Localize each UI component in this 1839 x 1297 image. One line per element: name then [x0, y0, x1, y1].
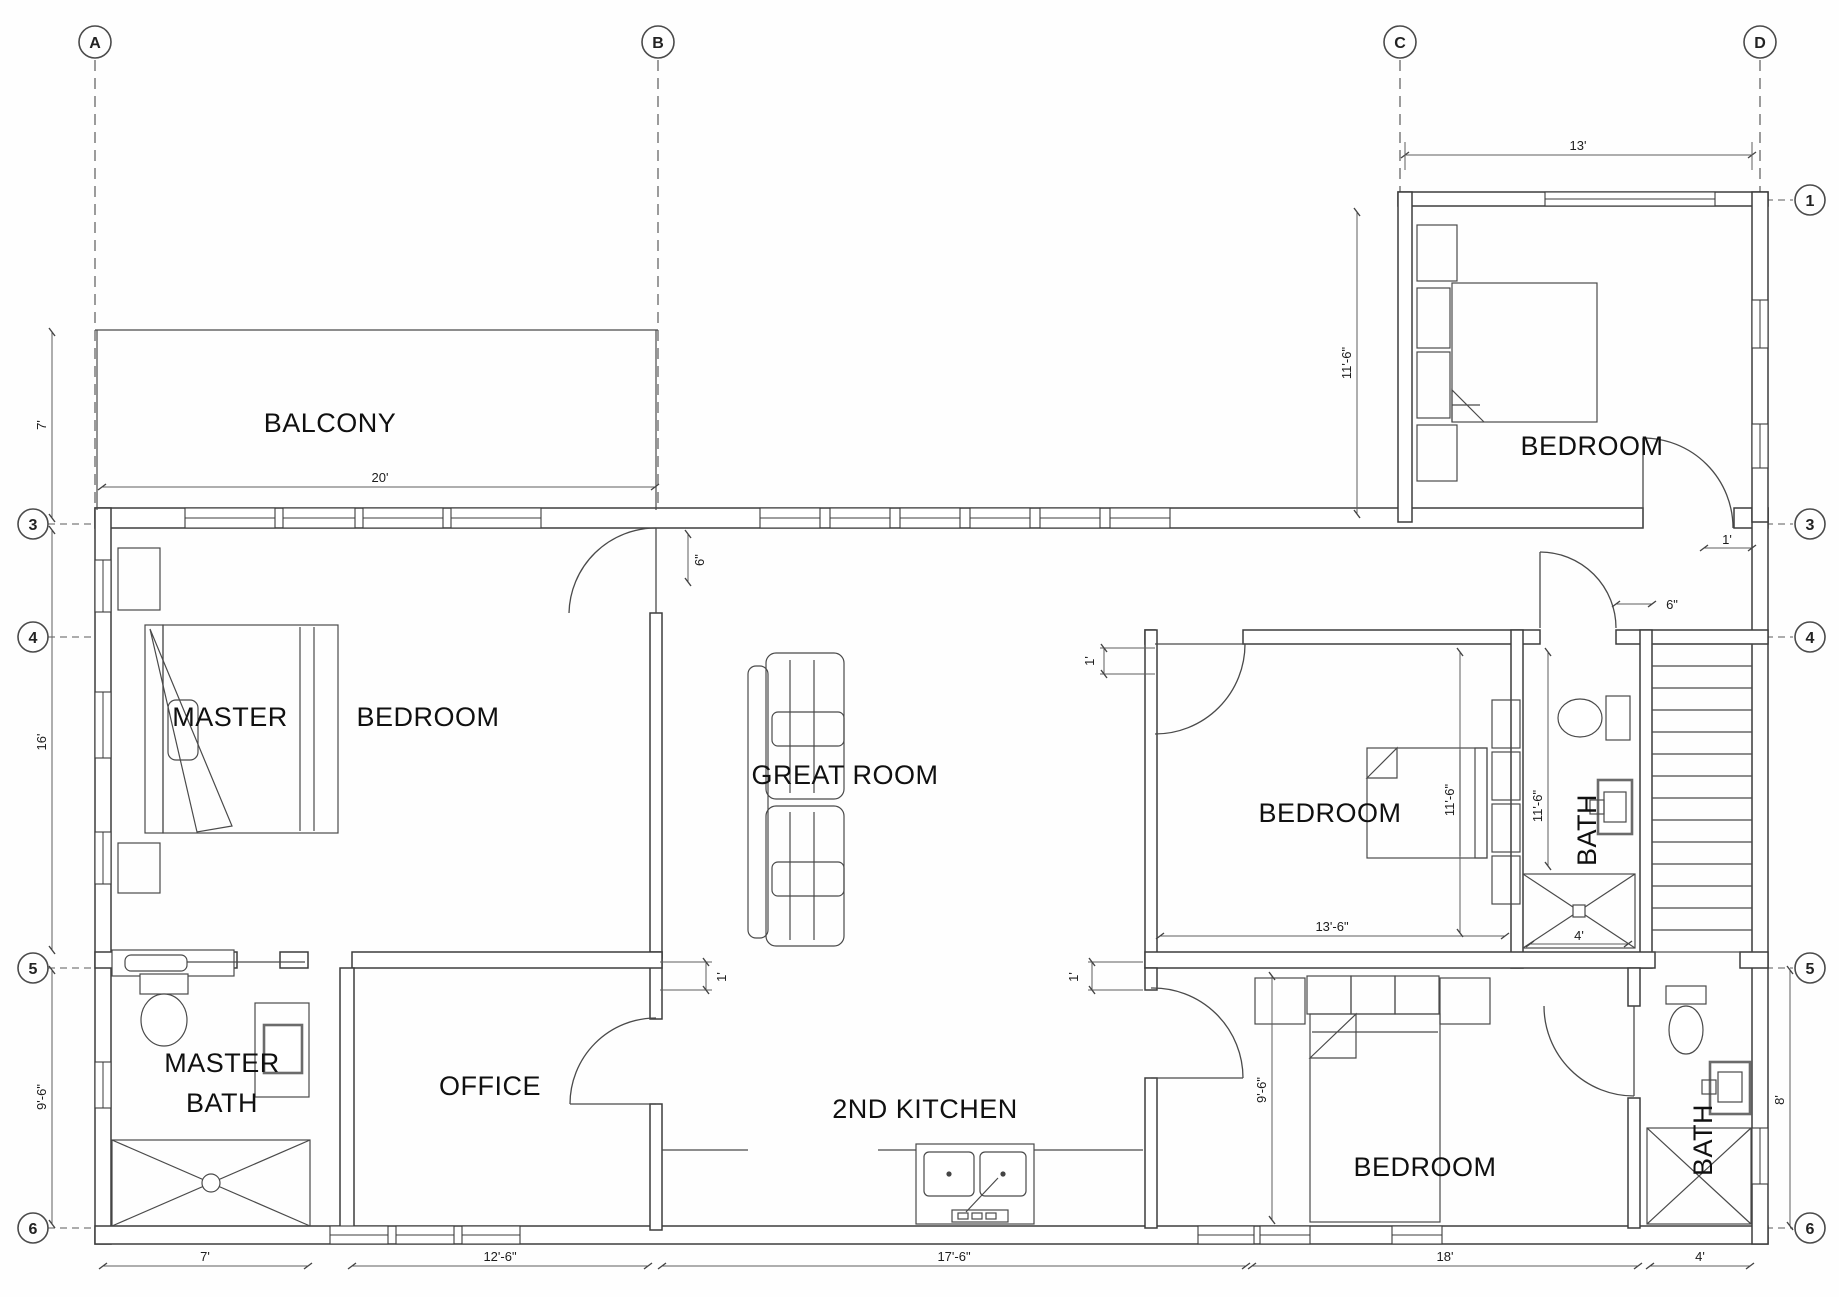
grid-marker-3-left: 3: [18, 509, 48, 539]
wall: [1740, 952, 1768, 968]
room-label-master-word2: BEDROOM: [356, 702, 499, 732]
door-master-bedroom: [569, 528, 656, 613]
dim-master-bath-width: 7': [200, 1249, 210, 1264]
grid-marker-6-left: 6: [18, 1213, 48, 1243]
svg-text:3: 3: [1806, 517, 1815, 534]
nightstand-icon: [118, 843, 160, 893]
wall: [1398, 192, 1412, 522]
dim-bedroom-tr-width: 13': [1570, 138, 1587, 153]
room-label-office: OFFICE: [439, 1071, 541, 1101]
kitchen-sink-icon: [916, 1144, 1034, 1224]
grid-marker-6-right: 6: [1795, 1213, 1825, 1243]
grid-marker-5-left: 5: [18, 953, 48, 983]
grid-marker-c: C: [1384, 26, 1416, 58]
wall: [352, 952, 662, 968]
bed-icon: [1310, 1014, 1440, 1222]
dim-master-bath-depth: 9'-6": [34, 1084, 49, 1110]
dim-bedroom-tr-depth: 11'-6": [1339, 347, 1354, 380]
dim-balcony-width: 20': [372, 470, 389, 485]
grid-marker-a: A: [79, 26, 111, 58]
room-label-master-bath-line2: BATH: [186, 1088, 258, 1118]
grid-marker-1: 1: [1795, 185, 1825, 215]
toilet-icon: [1666, 986, 1706, 1054]
svg-text:B: B: [652, 35, 664, 52]
svg-text:4: 4: [1806, 630, 1815, 647]
wall: [1640, 630, 1652, 968]
svg-text:3: 3: [29, 517, 38, 534]
room-label-bedroom-bottom: BEDROOM: [1353, 1152, 1496, 1182]
dim-bath-bottom-width: 4': [1695, 1249, 1705, 1264]
wall: [650, 1104, 662, 1230]
grid-marker-5-right: 5: [1795, 953, 1825, 983]
wall: [1145, 630, 1157, 968]
wall: [1243, 630, 1540, 644]
room-label-master-word1: MASTER: [172, 702, 288, 732]
wall: [1628, 968, 1640, 1006]
grid-marker-d: D: [1744, 26, 1776, 58]
wall: [1628, 1098, 1640, 1228]
toilet-icon: [1558, 696, 1630, 740]
svg-text:4: 4: [29, 630, 38, 647]
dim-shower-mid-width: 4': [1574, 928, 1584, 943]
window: [185, 508, 541, 528]
svg-text:A: A: [89, 35, 101, 52]
door-bath-mid: [1540, 552, 1616, 628]
dim-bedroom-mid-depth: 11'-6": [1442, 784, 1457, 817]
door-bath-bottom: [1544, 1006, 1634, 1096]
svg-text:6: 6: [1806, 1221, 1815, 1238]
door-office: [570, 1018, 656, 1104]
wall: [340, 968, 354, 1228]
shower-icon: [112, 1140, 310, 1226]
svg-text:5: 5: [29, 961, 38, 978]
svg-text:6: 6: [29, 1221, 38, 1238]
room-label-bath-bottom: BATH: [1688, 1104, 1718, 1176]
svg-text:C: C: [1394, 35, 1406, 52]
wall: [1145, 952, 1655, 968]
room-label-bedroom-top-right: BEDROOM: [1520, 431, 1663, 461]
stairs: [1652, 644, 1752, 952]
room-label-balcony: BALCONY: [264, 408, 397, 438]
dim-master-depth: 16': [34, 734, 49, 751]
svg-text:D: D: [1754, 35, 1766, 52]
wall: [1511, 630, 1523, 968]
dim-wall-offset-top-right: 1': [1722, 532, 1732, 547]
room-label-bath-mid: BATH: [1572, 794, 1602, 866]
room-label-great-room: GREAT ROOM: [751, 760, 938, 790]
grid-marker-4-right: 4: [1795, 622, 1825, 652]
dim-bedroom-mid-width: 13'-6": [1315, 919, 1349, 934]
dim-bedroom-bottom-width: 18': [1437, 1249, 1454, 1264]
grid-marker-3-right: 3: [1795, 509, 1825, 539]
toilet-icon: [140, 974, 188, 1046]
sofa-icon: [748, 653, 844, 946]
dim-bath-bottom-depth: 8': [1772, 1095, 1787, 1105]
svg-text:1: 1: [1806, 193, 1815, 210]
dim-bedroom-bottom-depth: 9'-6": [1254, 1077, 1269, 1103]
dim-kitchen-offset-right: 1': [1066, 972, 1081, 982]
dim-bedroom-mid-offset: 1': [1082, 656, 1097, 666]
dim-kitchen-offset-left: 1': [714, 972, 729, 982]
wall: [1145, 1078, 1157, 1228]
dim-master-door-offset: 6": [692, 554, 707, 566]
nightstand-icon: [118, 548, 160, 610]
dim-balcony-depth: 7': [34, 420, 49, 430]
room-label-master-bath-line1: MASTER: [164, 1048, 280, 1078]
dim-kitchen-width: 17'-6": [937, 1249, 971, 1264]
door-bedroom-mid: [1155, 644, 1245, 734]
closet-icon: [1255, 976, 1490, 1024]
floor-plan-drawing: 13' 11'-6" 7' 20' 16' 9'-6" 6" 1' 6" 1' …: [0, 0, 1839, 1297]
wall: [650, 613, 662, 958]
grid-marker-4-left: 4: [18, 622, 48, 652]
dim-hall-door-offset: 6": [1666, 597, 1678, 612]
dim-office-width: 12'-6": [483, 1249, 517, 1264]
dim-bath-mid-depth: 11'-6": [1530, 790, 1545, 823]
grid-marker-b: B: [642, 26, 674, 58]
floor-plan-sheet: 13' 11'-6" 7' 20' 16' 9'-6" 6" 1' 6" 1' …: [0, 0, 1839, 1297]
door-bedroom-bottom: [1151, 988, 1243, 1078]
wall: [1616, 630, 1768, 644]
wall: [280, 952, 308, 968]
vanity-sink-icon: [112, 950, 305, 976]
wall: [1752, 192, 1768, 522]
room-label-second-kitchen: 2ND KITCHEN: [832, 1094, 1018, 1124]
walls: [95, 192, 1768, 1244]
wall: [1145, 968, 1157, 990]
room-label-bedroom-mid: BEDROOM: [1258, 798, 1401, 828]
svg-text:5: 5: [1806, 961, 1815, 978]
